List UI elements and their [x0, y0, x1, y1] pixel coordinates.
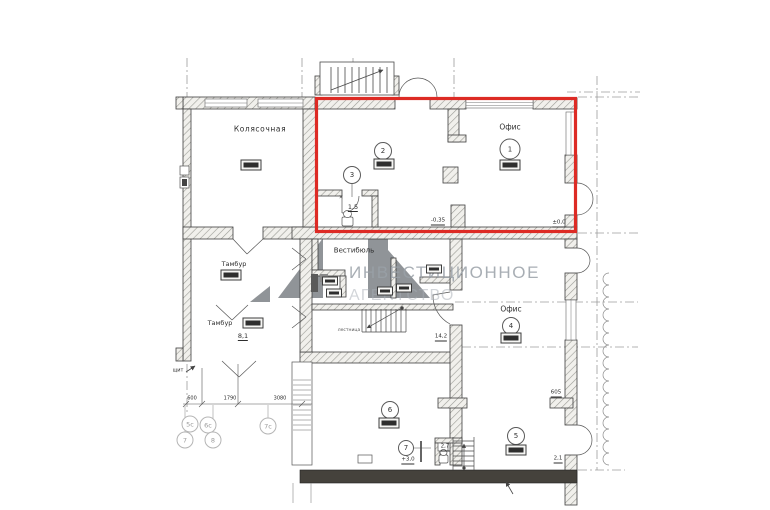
- room-label-stair: лестница: [338, 329, 360, 334]
- room-label-tambour1: Тамбур: [222, 261, 247, 268]
- area-stamp: [241, 160, 262, 171]
- bottom-outer-wall: [300, 470, 577, 483]
- room-label-office4: Офис: [500, 305, 521, 313]
- entrance-porch: [320, 62, 394, 95]
- room-circle-5: 5: [507, 427, 525, 445]
- room-circle-3: 3: [343, 166, 361, 184]
- area-tambour2: 8,1: [238, 333, 248, 341]
- area-stamp: [243, 318, 264, 329]
- mark-21: 2,1: [554, 457, 563, 464]
- area-stamp: [374, 159, 395, 170]
- dim-600: 600: [187, 397, 197, 402]
- area-stamp: [377, 287, 393, 296]
- area-stamp: [506, 445, 527, 456]
- dim-605: 605: [551, 391, 562, 398]
- mark-30: +3,0: [401, 458, 414, 465]
- panel-note: щит: [173, 369, 184, 374]
- area-stamp: [396, 284, 412, 293]
- area-stairhall: 14,2: [435, 335, 447, 342]
- area-stamp: [221, 270, 242, 281]
- room-circle-6: 6: [381, 401, 399, 419]
- area-stamp: [500, 160, 521, 171]
- area-stamp: [426, 265, 442, 274]
- floorplan-drawing: [0, 0, 770, 510]
- room-circle-1: 1: [500, 139, 521, 160]
- room-label-tambour2: Тамбур: [208, 320, 233, 327]
- dim-1790: 1790: [224, 397, 237, 402]
- main-stair: [362, 307, 406, 332]
- room-circle-7: 7: [398, 440, 414, 456]
- level-zero: ±0,0: [552, 221, 565, 228]
- area-stamp: [322, 277, 338, 286]
- area-wc3: 1,5: [348, 204, 358, 212]
- axis-circle-7s: 7с: [260, 418, 277, 435]
- level-entry: -0,35: [431, 219, 445, 226]
- floorplan-screenshot: ИНВЕСТИЦИОННОЕ АГЕНТСТВО Колясочная Офис…: [0, 0, 770, 510]
- room-label-vestibule: Вестибюль: [334, 248, 374, 255]
- room-label-office1: Офис: [499, 123, 520, 131]
- area-stamp: [501, 333, 522, 344]
- area-stamp: [326, 289, 342, 298]
- dim-3080: 3080: [274, 397, 287, 402]
- axis-circle-5s: 5с: [182, 416, 199, 433]
- axis-circle-7: 7: [177, 432, 194, 449]
- area-wc7: 2,7: [441, 445, 450, 452]
- x-mark: ×: [339, 196, 343, 201]
- area-stamp: [379, 418, 400, 429]
- room-label-stroller: Колясочная: [234, 125, 286, 133]
- axis-circle-8: 8: [205, 432, 222, 449]
- watermark-line1: ИНВЕСТИЦИОННОЕ: [349, 263, 540, 283]
- room-circle-2: 2: [374, 142, 392, 160]
